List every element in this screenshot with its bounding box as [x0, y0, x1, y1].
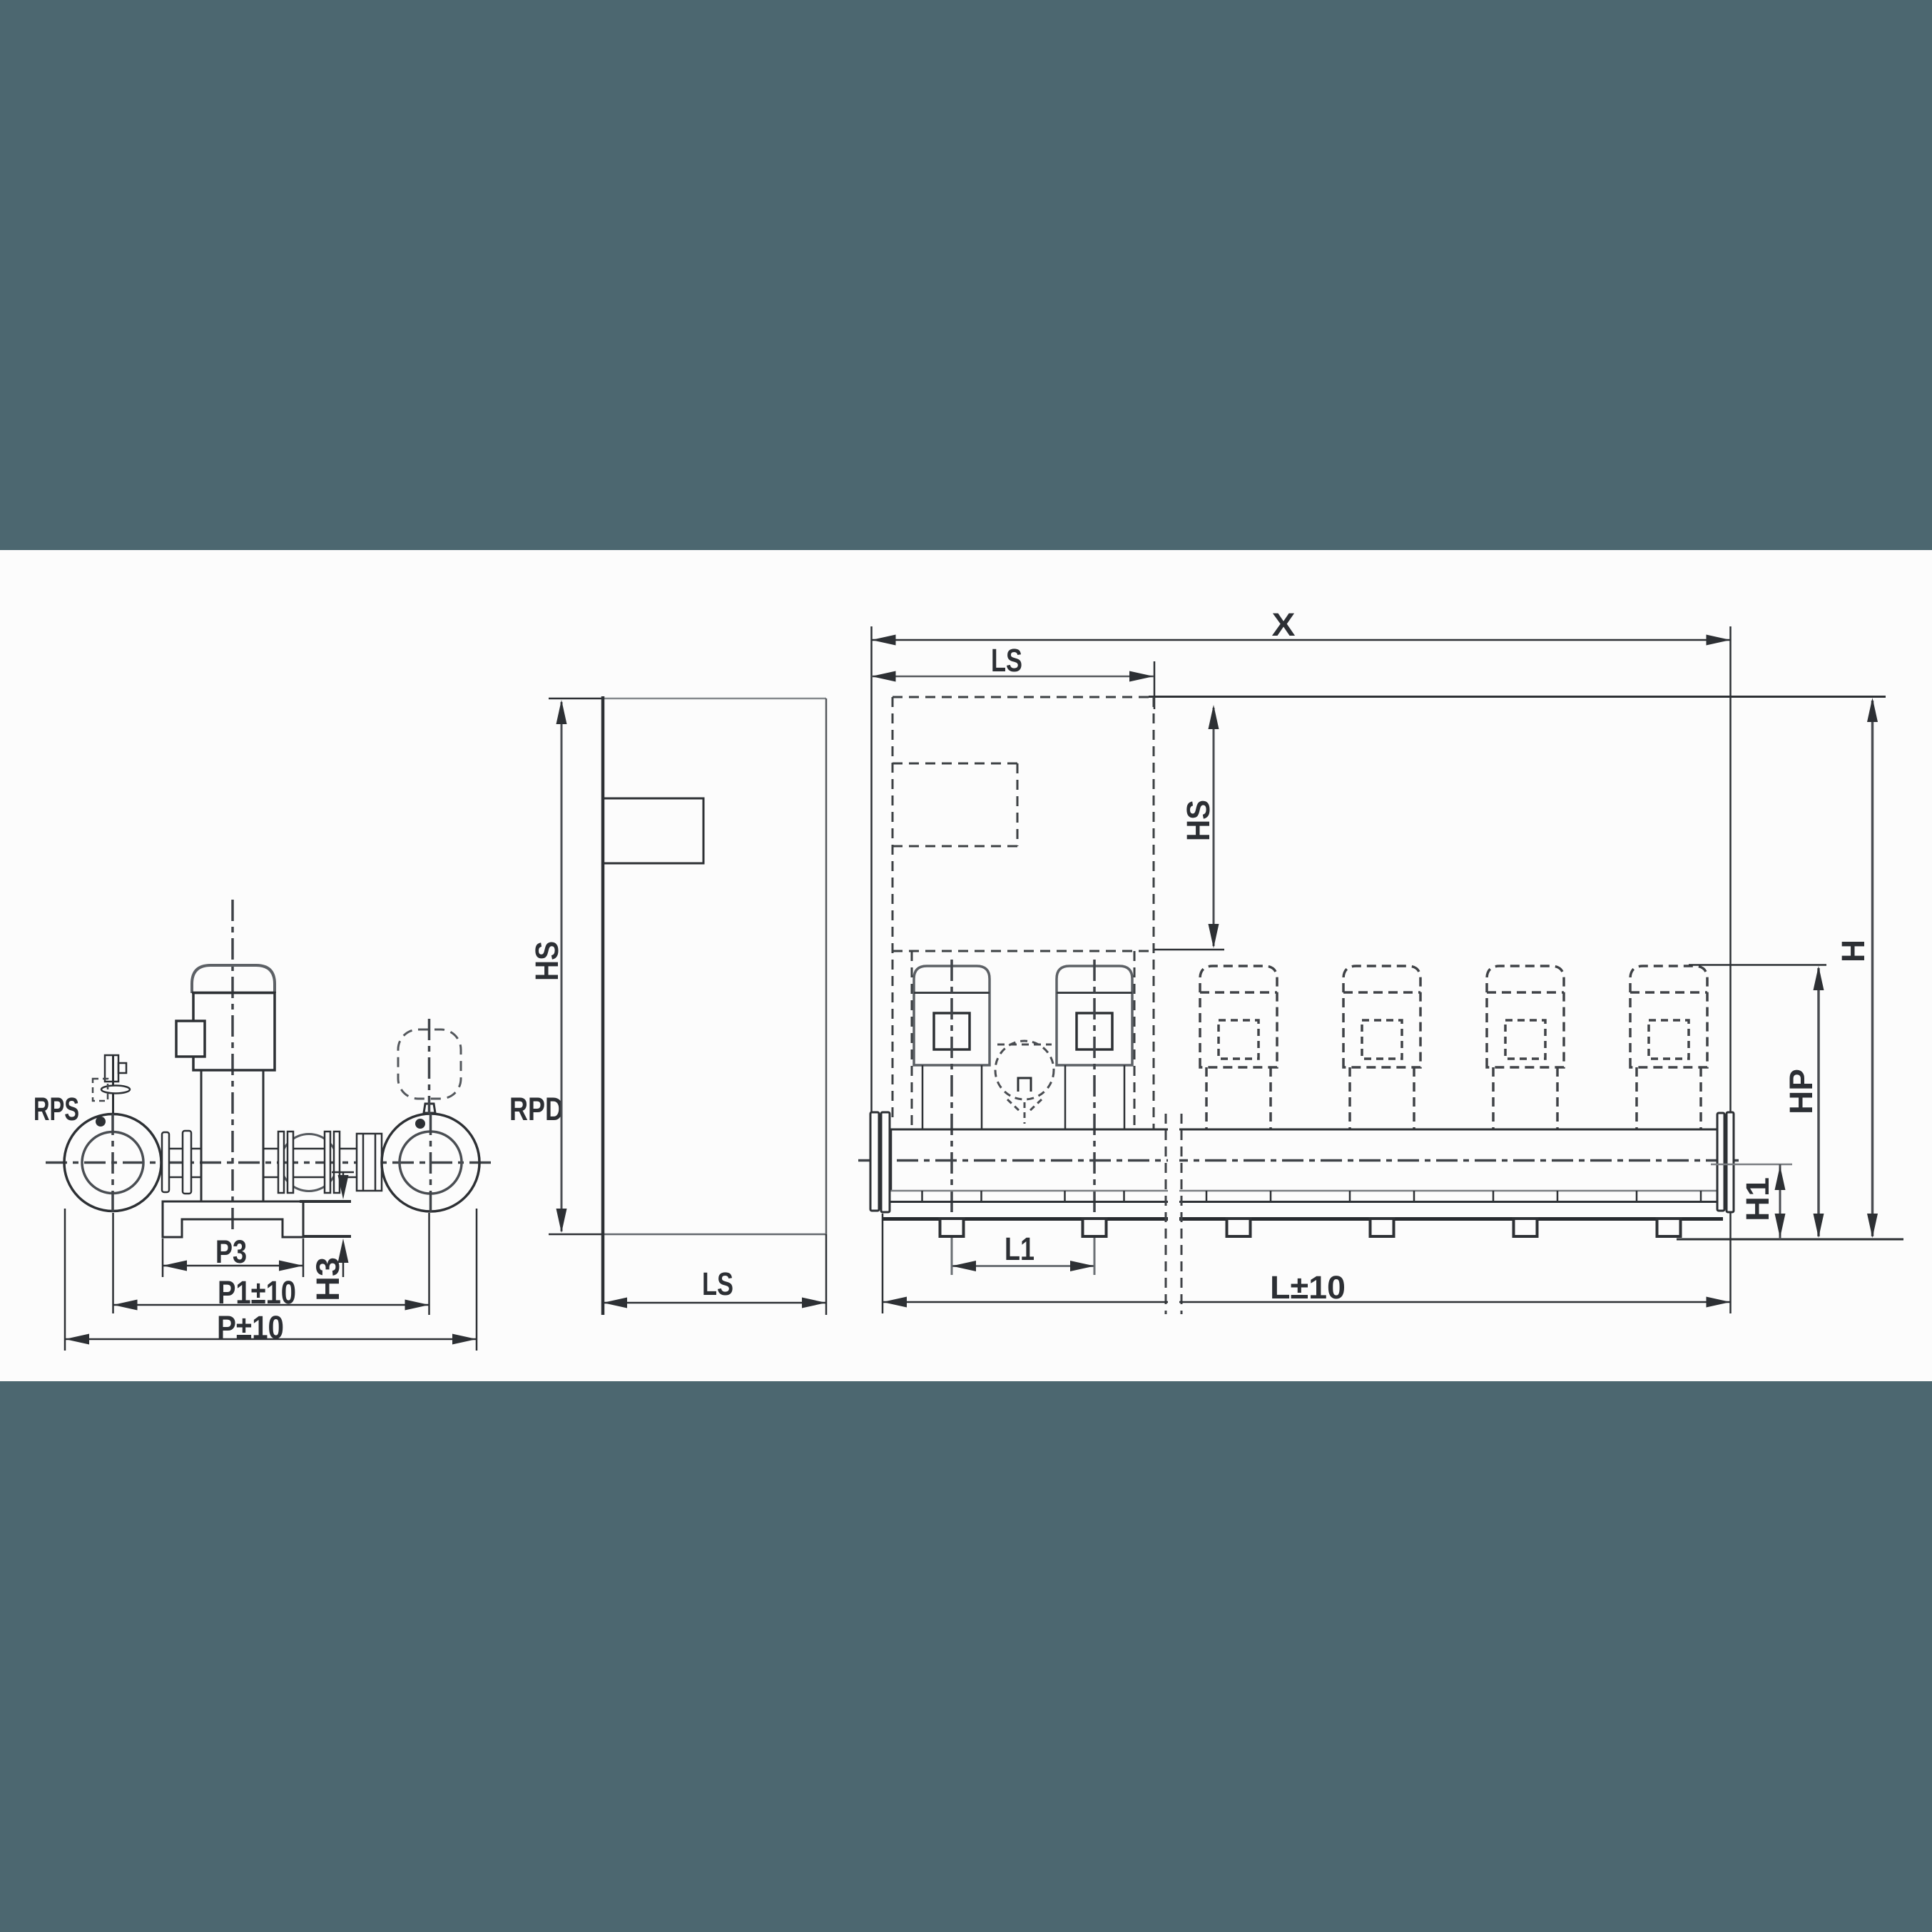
svg-text:H3: H3	[310, 1257, 346, 1301]
svg-text:L±10: L±10	[1270, 1269, 1346, 1306]
svg-text:P3: P3	[215, 1234, 247, 1270]
svg-text:RPS: RPS	[34, 1091, 79, 1127]
svg-text:P±10: P±10	[217, 1309, 284, 1346]
svg-text:L1: L1	[1005, 1231, 1034, 1267]
svg-text:H: H	[1835, 940, 1871, 962]
svg-text:HS: HS	[529, 941, 565, 981]
svg-text:P1±10: P1±10	[218, 1274, 296, 1311]
svg-text:LS: LS	[991, 642, 1022, 678]
svg-text:HP: HP	[1783, 1069, 1819, 1114]
svg-text:H1: H1	[1739, 1177, 1776, 1221]
svg-text:HS: HS	[1180, 800, 1216, 841]
svg-text:LS: LS	[702, 1266, 733, 1302]
svg-text:RPD: RPD	[509, 1091, 564, 1127]
svg-text:X: X	[1272, 606, 1296, 643]
